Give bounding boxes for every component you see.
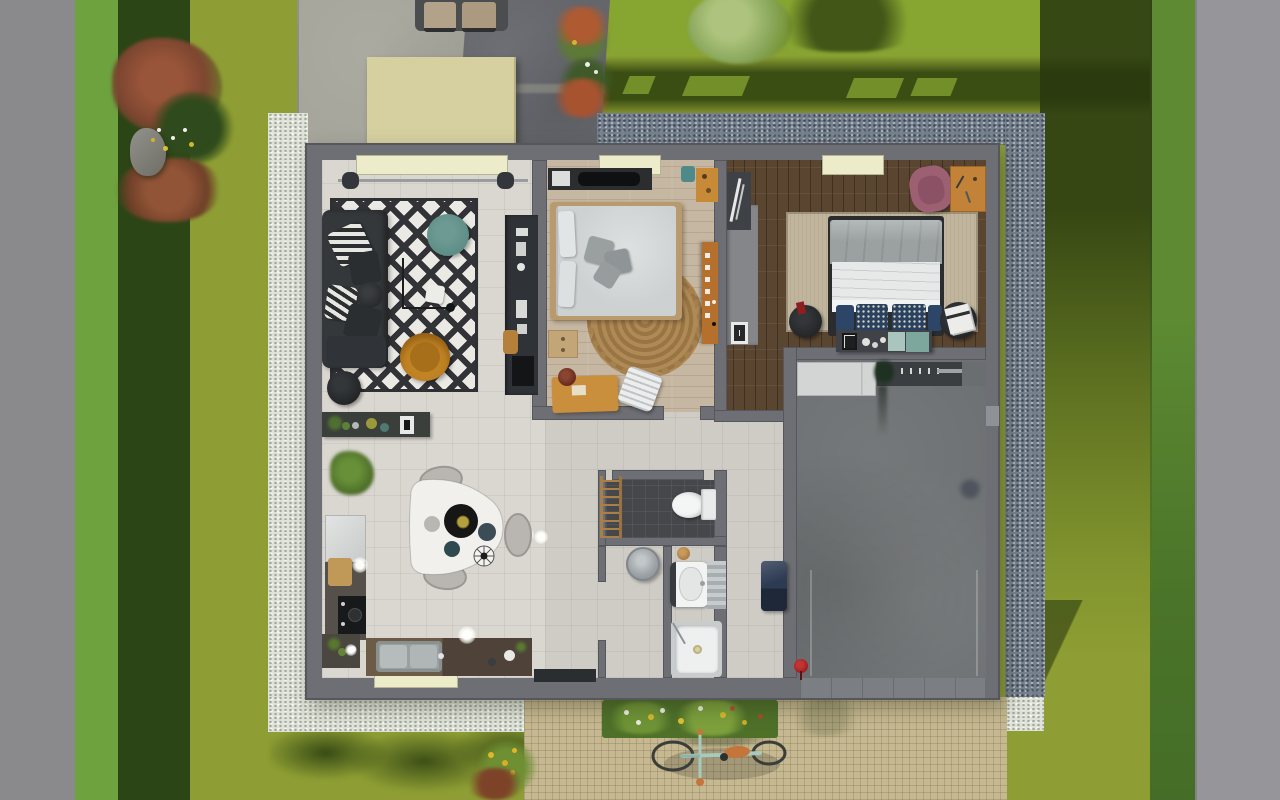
flower-yellow: [502, 760, 508, 766]
white-gravel-corner-right: [1006, 695, 1044, 731]
garage-door-track: [810, 570, 812, 676]
pan: [348, 608, 362, 622]
flower-white: [171, 136, 175, 140]
floor-lamp-head: [446, 303, 455, 312]
sofa-pillow-dark-1: [347, 250, 382, 287]
towel-mat: [707, 561, 726, 609]
coffee-table-dark: [357, 282, 383, 308]
cooktop-knob: [341, 602, 345, 606]
garage-plant: [874, 358, 894, 386]
armchair-mustard-seat: [410, 342, 440, 372]
bench-dot: [880, 337, 886, 343]
bicycle-grip: [696, 778, 704, 786]
tv-unit: [505, 215, 538, 395]
dining-chair: [505, 514, 531, 556]
flower-yellow: [512, 748, 517, 753]
shelf-item: [516, 300, 527, 318]
garage-plant-shadow: [878, 386, 887, 436]
white-gravel-left: [268, 113, 308, 732]
bed2-bench: [836, 330, 932, 352]
fire-extinguisher-stem: [800, 671, 802, 680]
bench-dot: [872, 342, 878, 348]
shelf-item: [516, 228, 528, 236]
sideboard-bowl: [352, 422, 359, 429]
desk-paper: [572, 385, 586, 395]
vanity-faucet: [700, 581, 705, 586]
side-table-black: [327, 371, 361, 405]
plate-gray: [424, 516, 440, 532]
bicycle-crank: [720, 753, 728, 761]
shelf-end-block: [962, 362, 986, 386]
bicycle-grip: [697, 729, 703, 735]
pendant-light: [345, 644, 357, 656]
window-living: [356, 155, 508, 175]
flower-red: [730, 706, 735, 711]
standing-mirror: [727, 172, 751, 230]
nightstand-handle: [561, 337, 565, 341]
bicycle: [640, 722, 800, 794]
sideboard-frame: [400, 416, 414, 434]
cabinet-knob: [712, 322, 716, 326]
floor-lamp-arm: [402, 307, 450, 309]
bedroom2-desk: [950, 166, 986, 212]
curtain-left: [342, 172, 359, 189]
window-bedroom2: [822, 155, 884, 175]
chair-pink-seat: [916, 174, 946, 206]
flower-yellow: [488, 752, 494, 758]
floorplan-render: [0, 0, 1280, 800]
faucet: [438, 653, 444, 659]
bedroom1-side-table: [696, 168, 718, 202]
bench-box-mint: [888, 332, 905, 351]
parked-car: [415, 0, 508, 31]
shelf-item: [517, 324, 527, 334]
kitchen-sink: [376, 641, 442, 672]
floor-dressing-strip: [722, 350, 790, 412]
car-seat: [462, 2, 496, 32]
bed2-gray-duvet: [830, 220, 942, 264]
shelf-box: [937, 369, 963, 373]
floor-utility: [722, 412, 783, 678]
pendant-light: [458, 626, 476, 644]
dresser-item: [552, 171, 570, 186]
plate-teal: [444, 541, 460, 557]
flower-white: [660, 708, 665, 713]
flower-dots-topleft: [145, 122, 205, 162]
blue-gravel-right: [1005, 113, 1045, 697]
tv-screen: [512, 356, 534, 386]
tall-cabinet-wood: [702, 242, 718, 344]
white-gravel-bottom: [268, 696, 525, 732]
flower-yellow: [720, 712, 726, 718]
flower-yellow: [151, 138, 155, 142]
bed1-pillow: [558, 261, 576, 308]
entrance-door: [534, 669, 596, 682]
bed1-pillow: [558, 211, 576, 258]
shrub-cluster-driveway: [545, 0, 627, 126]
counter-vase: [504, 650, 515, 661]
floor-picture-frame: [731, 322, 748, 344]
wooden-stool-small: [677, 547, 690, 560]
desk-pen: [956, 175, 965, 188]
garage-door: [800, 678, 985, 698]
desk-dot: [973, 177, 977, 181]
pouf-teal: [427, 214, 469, 256]
flower-white: [698, 706, 703, 711]
sink-basin: [380, 645, 407, 668]
hedge-left-bright: [75, 0, 118, 800]
desk-pen: [965, 191, 971, 203]
garage-side-door: [986, 406, 999, 426]
wall-dressing-south: [714, 410, 790, 422]
counter-plant: [516, 642, 526, 652]
towel-ladder: [600, 476, 622, 538]
blue-gravel-top: [597, 113, 1045, 145]
kitchen-tall-cabinet: [325, 515, 366, 562]
bed2-pillow-navy-left: [836, 305, 854, 331]
shadow-window-light-2: [682, 76, 750, 96]
curtain-right: [497, 172, 514, 189]
bush-red-bottom: [466, 768, 524, 800]
wall-hall-stub-upper: [598, 546, 606, 582]
shrub-red-lower: [116, 158, 220, 222]
shelf-item: [516, 242, 526, 256]
shelf-item: [517, 263, 525, 271]
bench-dot: [862, 338, 870, 346]
garden-shed: [367, 57, 516, 148]
vanity-side-dark: [670, 562, 676, 607]
dresser-tv: [578, 172, 640, 186]
platter-bowl: [457, 516, 469, 528]
bed2-pillow-pattern: [892, 304, 926, 331]
plant-pot-brown: [558, 368, 576, 386]
indoor-plant: [330, 451, 374, 495]
table-item: [706, 188, 711, 193]
cooktop-knob: [341, 622, 345, 626]
shower-drain: [693, 645, 702, 654]
bathroom-vanity: [670, 562, 708, 607]
garage-door-track: [976, 570, 978, 676]
bench-frame: [842, 333, 857, 350]
cabinet-knob: [712, 300, 716, 304]
shrub-red: [551, 6, 613, 46]
shadow-window-light-3: [846, 78, 904, 98]
bedroom1-dresser: [548, 168, 652, 190]
bed1-nightstand: [548, 330, 578, 358]
car-seat: [424, 2, 456, 32]
wall-hall-stub-lower: [598, 640, 606, 678]
cutting-board: [328, 558, 352, 586]
garage-appliance: [797, 362, 876, 396]
road-left: [0, 0, 75, 800]
pendant-light: [352, 557, 368, 573]
plate-dark: [478, 523, 496, 541]
cooktop: [338, 596, 366, 634]
flower-yellow: [648, 714, 654, 720]
wall-wc-north: [612, 470, 704, 480]
counter-bowl: [488, 658, 496, 666]
dining-set: [395, 460, 545, 595]
flower-yellow: [163, 146, 168, 151]
wooden-stool: [503, 330, 518, 354]
flower-yellow: [189, 142, 194, 147]
laundry-hamper-navy: [761, 561, 787, 611]
starburst-placemat: [474, 546, 494, 566]
table-item: [702, 174, 707, 179]
waste-bin-teal: [681, 166, 695, 182]
floor-lamp-pole: [402, 258, 404, 309]
kitchen-counter-bottom: [366, 638, 532, 676]
flower-white: [624, 710, 629, 715]
bed2-pillow-pattern: [856, 304, 888, 331]
sideboard-plant: [328, 416, 342, 430]
laundry-bin-round: [626, 547, 660, 581]
tree-shadow-top: [772, 0, 922, 52]
sideboard: [322, 412, 430, 437]
floor-stain: [958, 478, 982, 500]
nightstand-handle: [561, 348, 565, 352]
kitchen-counter-left: [325, 562, 366, 640]
flower-red: [758, 714, 763, 719]
lawn-shadow-right-strip: [1040, 0, 1152, 660]
cabinet-items: [705, 248, 710, 318]
flower-white: [585, 62, 590, 67]
toilet-tank: [701, 489, 716, 520]
flower-white: [594, 70, 598, 74]
sideboard-vase-olive: [366, 418, 377, 429]
sideboard-vase-teal: [380, 423, 389, 432]
sofa-chaise-cushion: [326, 336, 386, 366]
shrub-red: [550, 78, 614, 118]
hedge-right: [1150, 0, 1195, 800]
flower-white: [183, 128, 187, 132]
coffee-table-white: [425, 284, 446, 305]
sideboard-plant: [342, 422, 350, 430]
shadow-window-light-4: [910, 78, 957, 96]
bench-box-teal: [906, 332, 929, 352]
sink-basin: [410, 645, 437, 668]
bed2: [828, 216, 944, 336]
floor-garage: [797, 360, 986, 678]
wall-garage-west: [783, 347, 797, 678]
flower-white: [157, 128, 161, 132]
shower-tray: [671, 621, 722, 677]
flower-yellow: [572, 40, 577, 45]
road-right: [1195, 0, 1280, 800]
